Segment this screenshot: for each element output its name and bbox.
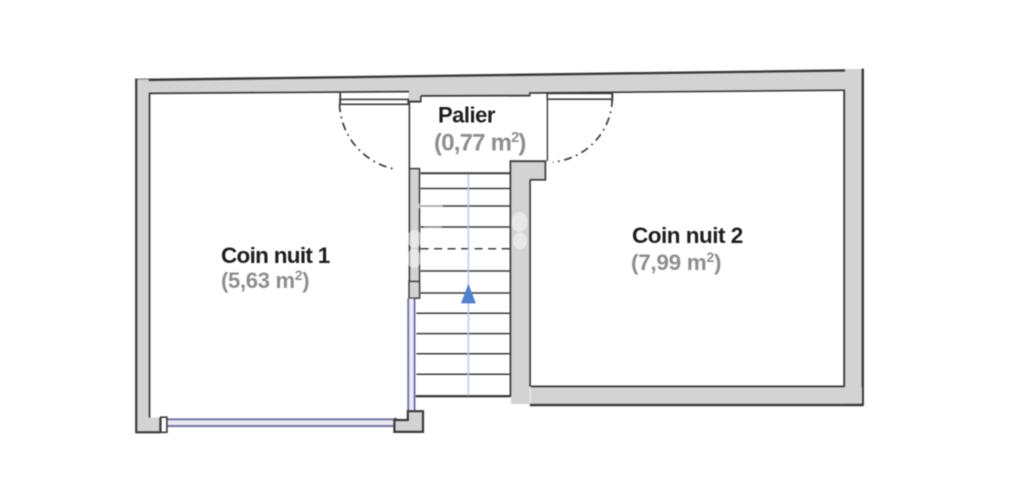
svg-text:Coin nuit 1: Coin nuit 1 [221, 243, 330, 268]
svg-text:Coin nuit 2: Coin nuit 2 [632, 223, 743, 248]
svg-text:Palier: Palier [438, 103, 496, 128]
